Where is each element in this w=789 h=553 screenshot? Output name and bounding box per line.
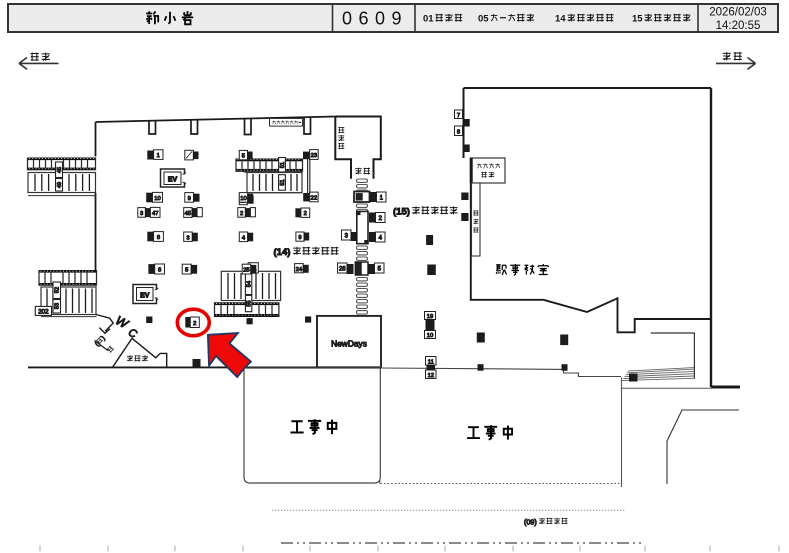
- svg-text:54: 54: [247, 281, 253, 287]
- svg-text:5: 5: [242, 154, 245, 160]
- svg-text:5: 5: [185, 268, 188, 274]
- svg-text:49: 49: [57, 182, 63, 188]
- svg-text:EV: EV: [140, 293, 150, 300]
- svg-text:2: 2: [193, 321, 196, 327]
- svg-text:(09): (09): [524, 518, 537, 527]
- svg-text:52: 52: [55, 287, 61, 293]
- svg-text:(15): (15): [393, 207, 410, 218]
- svg-text:22: 22: [311, 196, 317, 202]
- svg-text:25: 25: [243, 268, 249, 274]
- svg-text:45: 45: [57, 167, 63, 173]
- svg-text:45: 45: [185, 211, 191, 217]
- svg-text:11: 11: [428, 359, 434, 365]
- svg-text:14:20:55: 14:20:55: [716, 20, 761, 32]
- svg-text:8: 8: [157, 235, 160, 241]
- svg-text:05: 05: [478, 14, 489, 25]
- svg-text:C: C: [126, 327, 139, 341]
- svg-text:23: 23: [311, 153, 317, 159]
- svg-text:47: 47: [152, 211, 158, 217]
- svg-text:7: 7: [457, 113, 460, 119]
- svg-text:8: 8: [158, 268, 161, 274]
- svg-text:2026/02/03: 2026/02/03: [709, 7, 767, 19]
- svg-text:3: 3: [186, 235, 189, 241]
- svg-text:10: 10: [240, 196, 246, 202]
- svg-text:55: 55: [247, 300, 253, 306]
- svg-text:10: 10: [427, 333, 433, 339]
- svg-text:51: 51: [280, 162, 286, 168]
- svg-text:26: 26: [339, 267, 346, 273]
- svg-text:01: 01: [423, 14, 434, 25]
- svg-text:24: 24: [296, 267, 303, 273]
- svg-text:9: 9: [298, 235, 301, 241]
- svg-text:NewDays: NewDays: [331, 339, 367, 349]
- svg-text:0609: 0609: [342, 9, 408, 29]
- svg-text:2: 2: [240, 211, 243, 217]
- svg-text:51: 51: [280, 179, 286, 185]
- svg-text:W: W: [113, 313, 131, 331]
- svg-text:53: 53: [55, 303, 61, 309]
- svg-text:202: 202: [38, 308, 49, 315]
- svg-text:9: 9: [188, 196, 191, 202]
- svg-text:14: 14: [555, 14, 566, 25]
- svg-text:15: 15: [632, 14, 643, 25]
- svg-text:(14): (14): [274, 247, 291, 258]
- svg-text:1: 1: [157, 153, 160, 159]
- svg-text:12: 12: [428, 373, 434, 379]
- svg-text:10: 10: [154, 196, 160, 202]
- svg-text:3: 3: [140, 211, 143, 217]
- svg-text:2: 2: [304, 211, 307, 217]
- svg-text:EV: EV: [168, 177, 178, 184]
- svg-text:8: 8: [457, 129, 460, 135]
